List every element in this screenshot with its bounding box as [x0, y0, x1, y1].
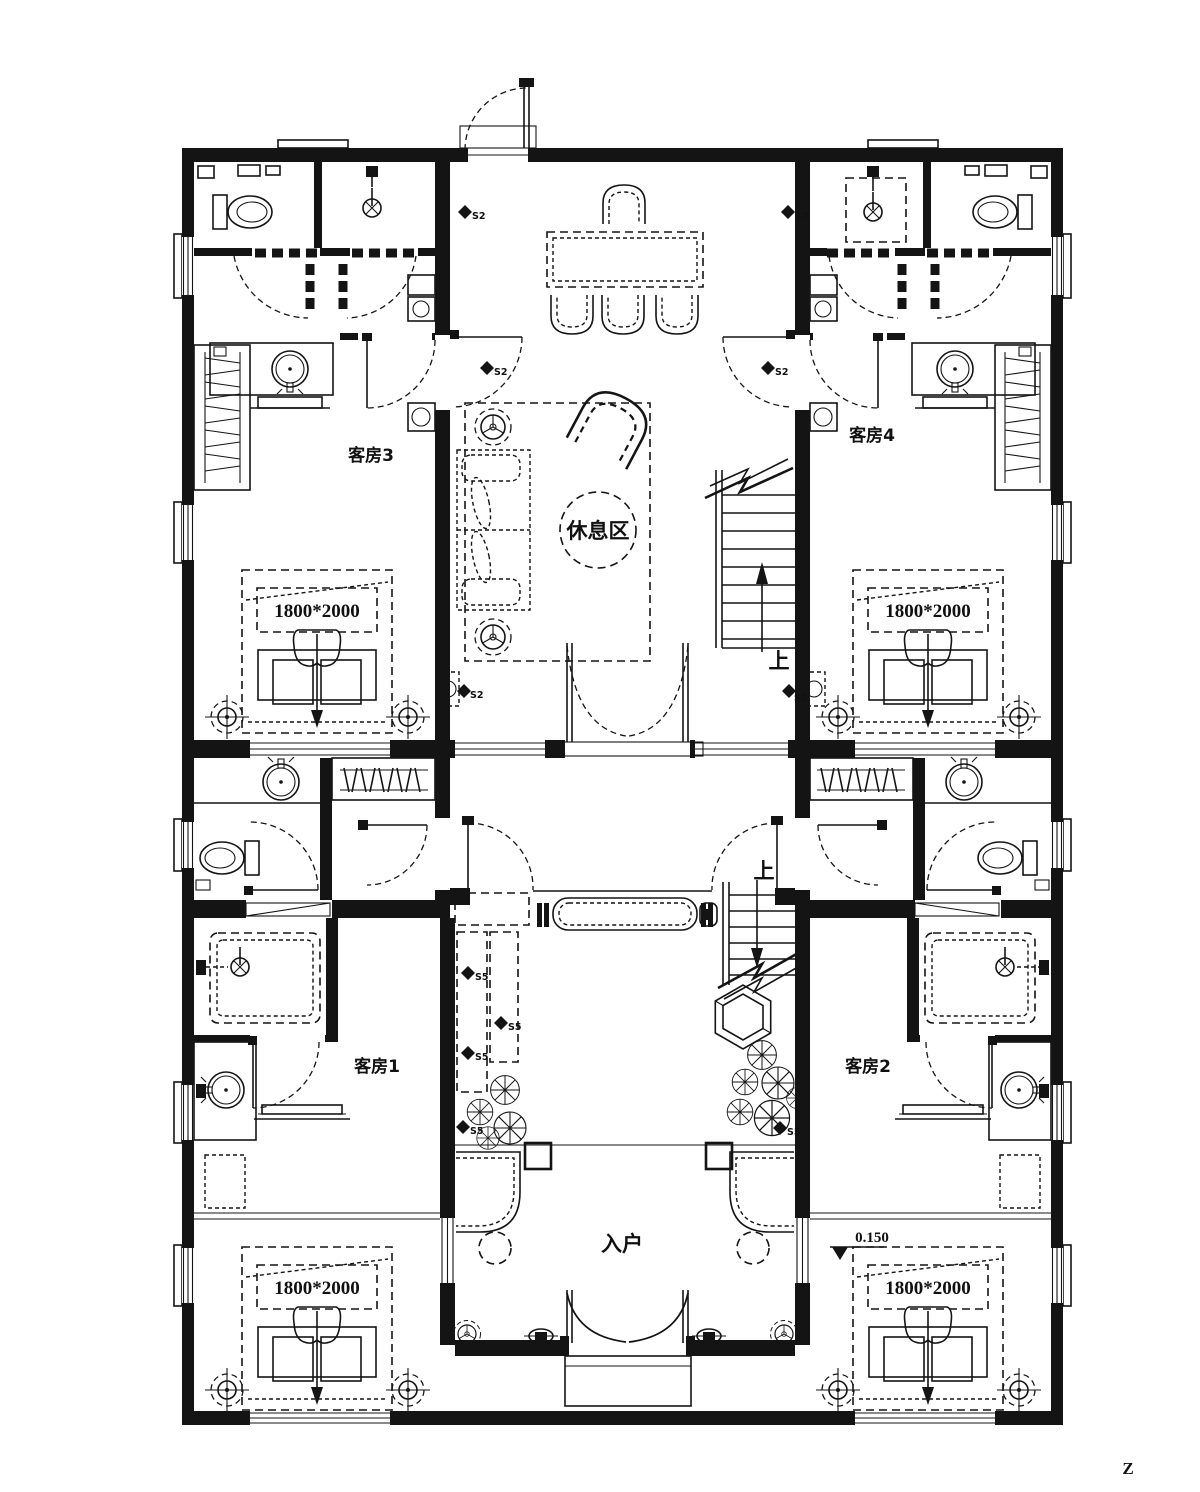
- svg-text:S2: S2: [472, 211, 485, 222]
- shower-icon: [363, 188, 381, 217]
- lounge-area: 休息区: [457, 383, 655, 661]
- ceiling-light-icon: [771, 1321, 798, 1348]
- sheet-mark: Z: [1122, 1459, 1133, 1478]
- bed-size-label: 1800*2000: [885, 601, 971, 622]
- toilet-icon: [973, 195, 1032, 229]
- toilet-icon: [200, 841, 259, 875]
- room-label: 客房1: [353, 1056, 400, 1077]
- dining-chair: [551, 295, 593, 334]
- ceiling-light-icon: [454, 1321, 481, 1348]
- switch-s2: S2: [480, 361, 507, 378]
- sink-icon: [937, 351, 973, 394]
- stool: [737, 1232, 769, 1264]
- vanity: [210, 343, 333, 408]
- armchair: [567, 383, 656, 470]
- floor-plan-page: 休息区 S2 S2 S2 S2 S2 S2 上: [0, 0, 1200, 1492]
- shower-icon: [231, 947, 249, 976]
- window: [182, 505, 194, 560]
- window: [855, 1411, 995, 1425]
- console-cabinets: [455, 893, 529, 1092]
- porch-step: [565, 1356, 691, 1406]
- vanity: [989, 1042, 1051, 1140]
- toilet-icon: [213, 195, 272, 229]
- switch-s2: S2: [458, 205, 485, 222]
- bed-size-label: 1800*2000: [274, 1278, 360, 1299]
- closet: [810, 758, 913, 800]
- floor-plan-drawing: 休息区 S2 S2 S2 S2 S2 S2 上: [0, 0, 1200, 1492]
- window: [1051, 1085, 1063, 1140]
- window: [695, 740, 788, 758]
- window: [1051, 505, 1063, 560]
- bed: 1800*2000: [205, 570, 430, 739]
- bed: 1800*2000: [816, 1247, 1041, 1412]
- bed-size-label: 1800*2000: [274, 601, 360, 622]
- wardrobe: [194, 345, 250, 490]
- hexagon-stool: [715, 985, 770, 1049]
- svg-text:S2: S2: [470, 690, 483, 701]
- staircase-up: 上: [705, 459, 795, 673]
- room-label: 客房2: [844, 1056, 891, 1077]
- switch-s2: S2: [782, 672, 825, 706]
- door: [244, 822, 318, 895]
- mid-bathroom-left: [194, 757, 435, 916]
- door: [927, 822, 1001, 895]
- svg-text:S2: S2: [775, 367, 788, 378]
- door: [926, 1036, 997, 1108]
- svg-text:S2: S2: [494, 367, 507, 378]
- mid-bathroom-right: [810, 757, 1051, 916]
- window: [440, 1218, 455, 1283]
- sink-icon: [201, 1072, 244, 1108]
- shower-icon: [996, 947, 1014, 976]
- lounge-label: 休息区: [566, 519, 630, 543]
- sink-icon: [1001, 1072, 1044, 1108]
- plant-icon: [475, 619, 511, 655]
- svg-text:S5: S5: [787, 1127, 800, 1138]
- window: [1051, 1248, 1063, 1303]
- curved-desk: [730, 1152, 794, 1232]
- window: [1051, 822, 1063, 868]
- wall-cabinets: [408, 275, 837, 431]
- switch-s5: S5: [461, 1046, 488, 1063]
- toilet-icon: [978, 841, 1037, 875]
- vanity: [912, 343, 1035, 408]
- hall: 休息区 S2 S2 S2 S2 S2 S2 上: [408, 78, 837, 756]
- door: [362, 333, 435, 408]
- rug: [1000, 1155, 1040, 1208]
- svg-text:S5: S5: [475, 1052, 488, 1063]
- tv-console: [254, 1105, 350, 1119]
- stair-up-label: 上: [754, 859, 775, 883]
- stair-up-label: 上: [769, 649, 790, 673]
- curved-desk: [456, 1152, 520, 1232]
- dining-table: [547, 232, 703, 287]
- sink-icon: [263, 757, 299, 800]
- window: [182, 1248, 194, 1303]
- shower-room: [925, 933, 1049, 1023]
- door: [248, 1036, 319, 1108]
- door: [462, 816, 533, 890]
- sink-icon: [946, 757, 982, 800]
- window: [182, 1085, 194, 1140]
- bench: [537, 898, 713, 930]
- svg-text:S5: S5: [475, 972, 488, 983]
- window: [1051, 237, 1063, 295]
- switch-s5: S5: [461, 966, 488, 983]
- vanity: [194, 1042, 256, 1140]
- plants: [467, 1041, 807, 1150]
- window: [250, 740, 390, 758]
- window: [182, 822, 194, 868]
- column: [706, 1143, 732, 1169]
- door: [818, 820, 887, 885]
- svg-text:S2: S2: [795, 211, 808, 222]
- tv-console: [895, 1105, 991, 1119]
- bed-size-label: 1800*2000: [885, 1278, 971, 1299]
- sofa: [457, 450, 530, 610]
- bed: 1800*2000: [816, 570, 1041, 739]
- switch-s2: S2: [761, 361, 788, 378]
- door: [358, 820, 427, 885]
- window: [182, 237, 194, 295]
- column: [525, 1143, 551, 1169]
- window: [855, 740, 995, 758]
- rug: [205, 1155, 245, 1208]
- courtyard: S5 S5 S5 S5 S5 上: [455, 816, 807, 1169]
- window: [795, 1218, 810, 1283]
- hall-french-door: [553, 643, 703, 756]
- shower-tray: [846, 178, 906, 242]
- svg-text:S5: S5: [508, 1022, 521, 1033]
- elevation-value: 0.150: [855, 1230, 889, 1246]
- plant-icon: [475, 409, 511, 445]
- sink-icon: [272, 351, 308, 394]
- entry-hall: 入户: [454, 1152, 798, 1406]
- switch-s5: S5: [494, 1016, 521, 1033]
- svg-text:S2: S2: [794, 693, 807, 704]
- staircase-entry: 上: [700, 859, 800, 999]
- window: [455, 740, 545, 758]
- elevation-marker: 0.150: [830, 1230, 889, 1260]
- window: [250, 1411, 390, 1425]
- closet: [332, 758, 435, 800]
- entry-label: 入户: [601, 1232, 643, 1256]
- guest-room-2: 客房2 1800*2000 0.150: [816, 933, 1051, 1412]
- stool: [479, 1232, 511, 1264]
- guest-room-1: 客房1 1800*2000: [194, 933, 430, 1412]
- dining-chair: [656, 295, 698, 334]
- wardrobe: [995, 345, 1051, 490]
- door: [810, 333, 883, 408]
- room-label: 客房4: [848, 425, 895, 446]
- switch-s5: S5: [456, 1120, 483, 1137]
- shower-icon: [864, 192, 882, 221]
- room-label: 客房3: [347, 445, 394, 466]
- shower-room: [196, 933, 320, 1023]
- dining-chair: [603, 185, 645, 224]
- dining-chair: [602, 295, 644, 334]
- bed: 1800*2000: [205, 1247, 430, 1412]
